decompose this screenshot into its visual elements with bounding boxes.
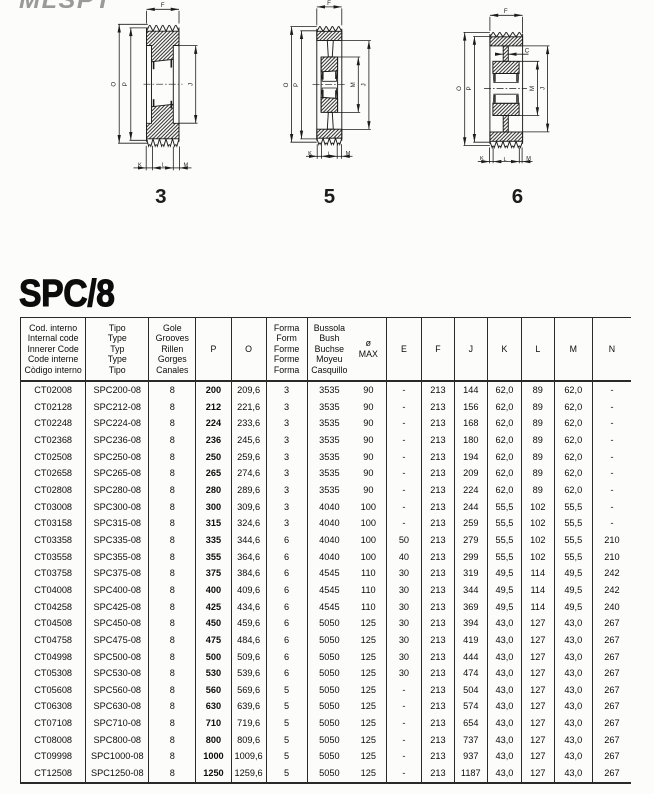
svg-text:K: K [480, 156, 484, 162]
svg-text:J: J [187, 83, 194, 86]
svg-text:F: F [161, 2, 165, 9]
svg-text:J: J [361, 83, 368, 86]
svg-text:5: 5 [324, 185, 335, 208]
svg-text:L: L [504, 157, 507, 163]
svg-text:L: L [328, 151, 331, 157]
svg-text:M: M [529, 86, 536, 91]
svg-text:3: 3 [155, 185, 166, 208]
svg-text:P: P [122, 82, 129, 86]
svg-text:O: O [283, 82, 290, 87]
svg-text:F: F [327, 0, 331, 7]
svg-text:M: M [350, 82, 357, 87]
svg-text:K: K [308, 151, 312, 157]
svg-text:F: F [504, 8, 508, 15]
svg-text:L: L [162, 162, 165, 168]
svg-text:M: M [526, 156, 531, 162]
svg-text:M: M [183, 162, 188, 168]
svg-text:K: K [138, 162, 142, 168]
svg-text:P: P [293, 83, 300, 87]
svg-text:M: M [346, 151, 351, 157]
svg-text:6: 6 [512, 185, 523, 208]
svg-text:P: P [466, 86, 473, 90]
svg-text:C: C [525, 47, 530, 54]
svg-text:J: J [539, 87, 546, 90]
svg-text:O: O [111, 82, 118, 87]
svg-text:O: O [456, 86, 463, 91]
